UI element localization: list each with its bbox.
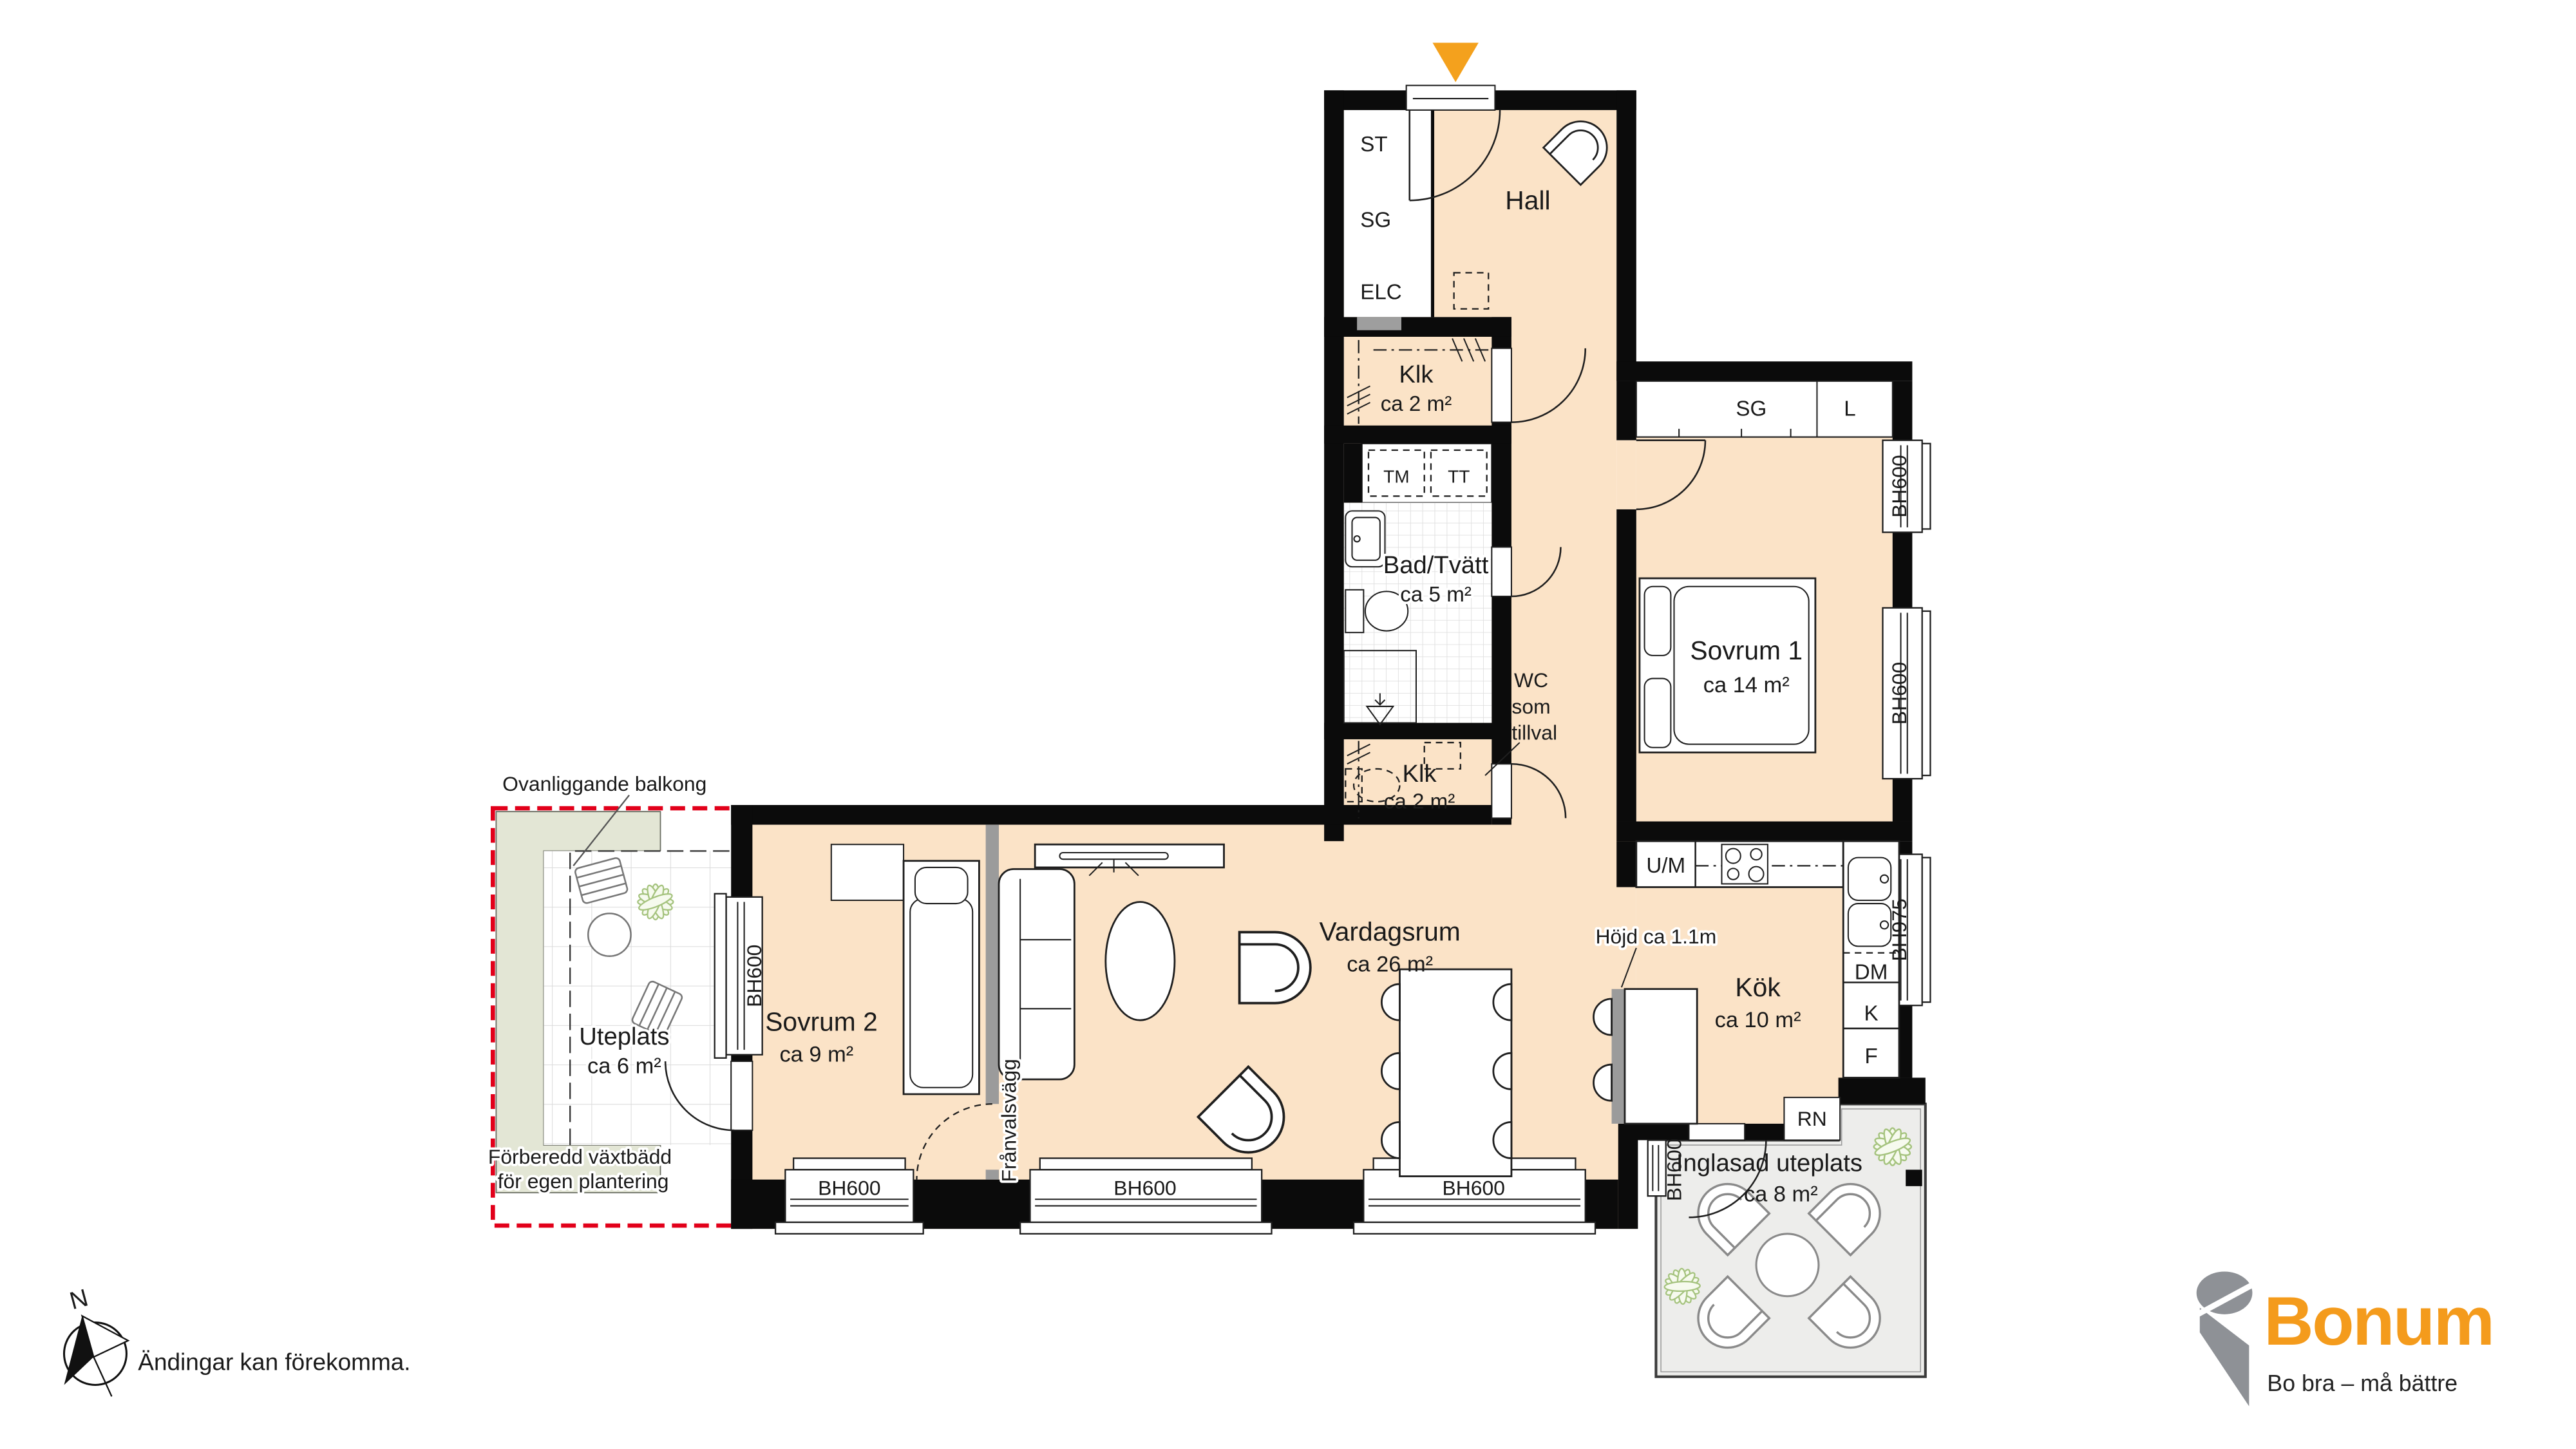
pillow	[1645, 587, 1671, 656]
room-bad-area: ca 5 m²	[1400, 583, 1472, 607]
wall-segment	[1616, 381, 1636, 440]
window-label: BH600	[743, 945, 766, 1007]
wall-segment	[1495, 90, 1636, 110]
wall-segment	[1324, 317, 1511, 337]
door	[1492, 764, 1511, 818]
label-um: U/M	[1646, 854, 1685, 878]
wall-segment	[1616, 361, 1912, 381]
note-balkong: Ovanliggande balkong	[502, 772, 706, 795]
armchair	[1240, 932, 1311, 1003]
wall-segment	[1344, 444, 1362, 503]
room-inglasad: Inglasad uteplats	[1676, 1150, 1862, 1177]
door	[1689, 1124, 1745, 1141]
elc-panel	[1357, 317, 1401, 330]
wall-segment	[1636, 1124, 1689, 1141]
window-label: BH600	[818, 1176, 880, 1199]
wall-segment	[1324, 426, 1511, 444]
wall-segment	[1616, 822, 1912, 842]
wall-segment	[1616, 90, 1636, 381]
room-klk-lower-area: ca 2 m²	[1384, 790, 1455, 813]
patio-post	[1906, 1170, 1922, 1186]
patio-table	[1756, 1234, 1819, 1296]
wall-segment	[1492, 818, 1511, 824]
label-k: K	[1864, 1001, 1879, 1025]
room-sovrum1: Sovrum 1	[1690, 636, 1803, 665]
room-uteplats: Uteplats	[579, 1023, 669, 1050]
room-bad: Bad/Tvätt	[1383, 551, 1489, 579]
sofa	[999, 869, 1074, 1079]
outdoor-table	[588, 913, 630, 956]
pillow	[915, 867, 968, 904]
label-rn: RN	[1797, 1107, 1827, 1130]
note-wc-2: som	[1511, 695, 1550, 718]
window-label: BH600	[1888, 662, 1911, 724]
room-klk-lower: Klk	[1403, 760, 1437, 788]
room-hall: Hall	[1505, 185, 1550, 215]
label-st: ST	[1360, 133, 1387, 156]
room-uteplats-area: ca 6 m²	[587, 1054, 661, 1079]
tv	[1059, 853, 1168, 859]
sink	[1848, 858, 1891, 900]
wall-segment	[1616, 841, 1636, 887]
room-klk-upper: Klk	[1399, 361, 1434, 388]
note-hojd: Höjd ca 1.1m	[1596, 925, 1717, 948]
label-tm: TM	[1383, 466, 1410, 486]
plant-icon	[1873, 1128, 1912, 1166]
disclaimer-text: Ändingar kan förekomma.	[138, 1349, 410, 1375]
label-l: L	[1844, 397, 1855, 421]
bonum-logo: Bonum Bo bra – må bättre	[2195, 1271, 2493, 1406]
window-sill	[1020, 1222, 1271, 1234]
note-franvalsvagg: Frånvalsvägg	[997, 1059, 1020, 1182]
window-sill	[1922, 444, 1931, 529]
window-label: BH600	[1443, 1176, 1505, 1199]
label-sg: SG	[1360, 208, 1391, 232]
window-label: BH600	[1888, 455, 1911, 517]
wall-segment	[1616, 509, 1636, 822]
label-dm: DM	[1855, 961, 1888, 985]
logo-tagline: Bo bra – må bättre	[2267, 1370, 2458, 1396]
wall-segment	[731, 1180, 785, 1229]
logo-brand: Bonum	[2264, 1282, 2493, 1359]
floor-plan: ST SG ELC Hall Klk ca 2 m² TM TT Bad/Tvä…	[0, 0, 2576, 1449]
window-label: BH600	[1113, 1176, 1176, 1199]
window-sill	[775, 1222, 923, 1234]
toilet-tank	[1345, 590, 1363, 632]
wall-segment	[913, 1180, 1030, 1229]
floor-plan-page: ST SG ELC Hall Klk ca 2 m² TM TT Bad/Tvä…	[0, 0, 2576, 1449]
wall-segment	[1893, 533, 1913, 608]
half-wall	[1612, 989, 1625, 1124]
room-kok-area: ca 10 m²	[1715, 1008, 1801, 1032]
wall-segment	[1839, 1077, 1926, 1104]
room-sovrum2-area: ca 9 m²	[779, 1043, 853, 1067]
door	[731, 1061, 752, 1130]
inglasad-uteplats	[1656, 1104, 1925, 1376]
window-sill	[1040, 1158, 1252, 1170]
label-f: F	[1864, 1045, 1877, 1068]
coffee-table	[1106, 902, 1175, 1021]
window-sill	[715, 894, 726, 1058]
pillow	[1645, 679, 1671, 748]
wall-segment	[1324, 723, 1511, 739]
window-sill	[1922, 858, 1931, 1002]
wall-segment	[1618, 1124, 1638, 1229]
entrance-door	[1406, 86, 1495, 110]
closet	[831, 844, 904, 900]
wall-segment	[1586, 1180, 1618, 1229]
sink	[1848, 904, 1891, 946]
window-label: BH600	[1662, 1139, 1685, 1201]
compass: N	[64, 1284, 128, 1397]
bar-counter	[1625, 989, 1697, 1124]
wall-segment	[1893, 381, 1913, 440]
plant-icon	[638, 884, 674, 920]
wall-segment	[1893, 779, 1913, 821]
room-klk-upper-area: ca 2 m²	[1381, 392, 1452, 416]
window-label: BH975	[1888, 898, 1911, 961]
door	[1492, 348, 1511, 422]
room-kok: Kök	[1735, 972, 1781, 1002]
entrance-arrow-icon	[1432, 43, 1478, 82]
window-sill	[1354, 1222, 1595, 1234]
note-wc-3: tillval	[1511, 721, 1557, 744]
label-elc: ELC	[1360, 281, 1402, 305]
wall-segment	[731, 805, 1492, 825]
wall-segment	[731, 805, 752, 900]
room-inglasad-area: ca 8 m²	[1744, 1182, 1818, 1207]
room-sovrum1-area: ca 14 m²	[1703, 673, 1790, 697]
faucet	[1354, 536, 1360, 542]
note-vaxtbadd-1: Förberedd växtbädd	[488, 1145, 672, 1168]
label-sg2: SG	[1736, 397, 1766, 421]
label-tt: TT	[1448, 466, 1470, 486]
laundry-niche	[1362, 444, 1492, 503]
compass-north-label: N	[67, 1284, 91, 1316]
door	[1492, 547, 1511, 596]
note-vaxtbadd-2: för egen plantering	[498, 1170, 669, 1193]
window-sill	[793, 1158, 905, 1170]
wall-segment	[1262, 1180, 1363, 1229]
room-sovrum2: Sovrum 2	[765, 1007, 878, 1037]
room-vardagsrum: Vardagsrum	[1320, 916, 1461, 946]
window-sill	[1922, 611, 1931, 775]
note-wc-1: WC	[1514, 668, 1548, 692]
room-vardagsrum-area: ca 26 m²	[1347, 952, 1433, 976]
